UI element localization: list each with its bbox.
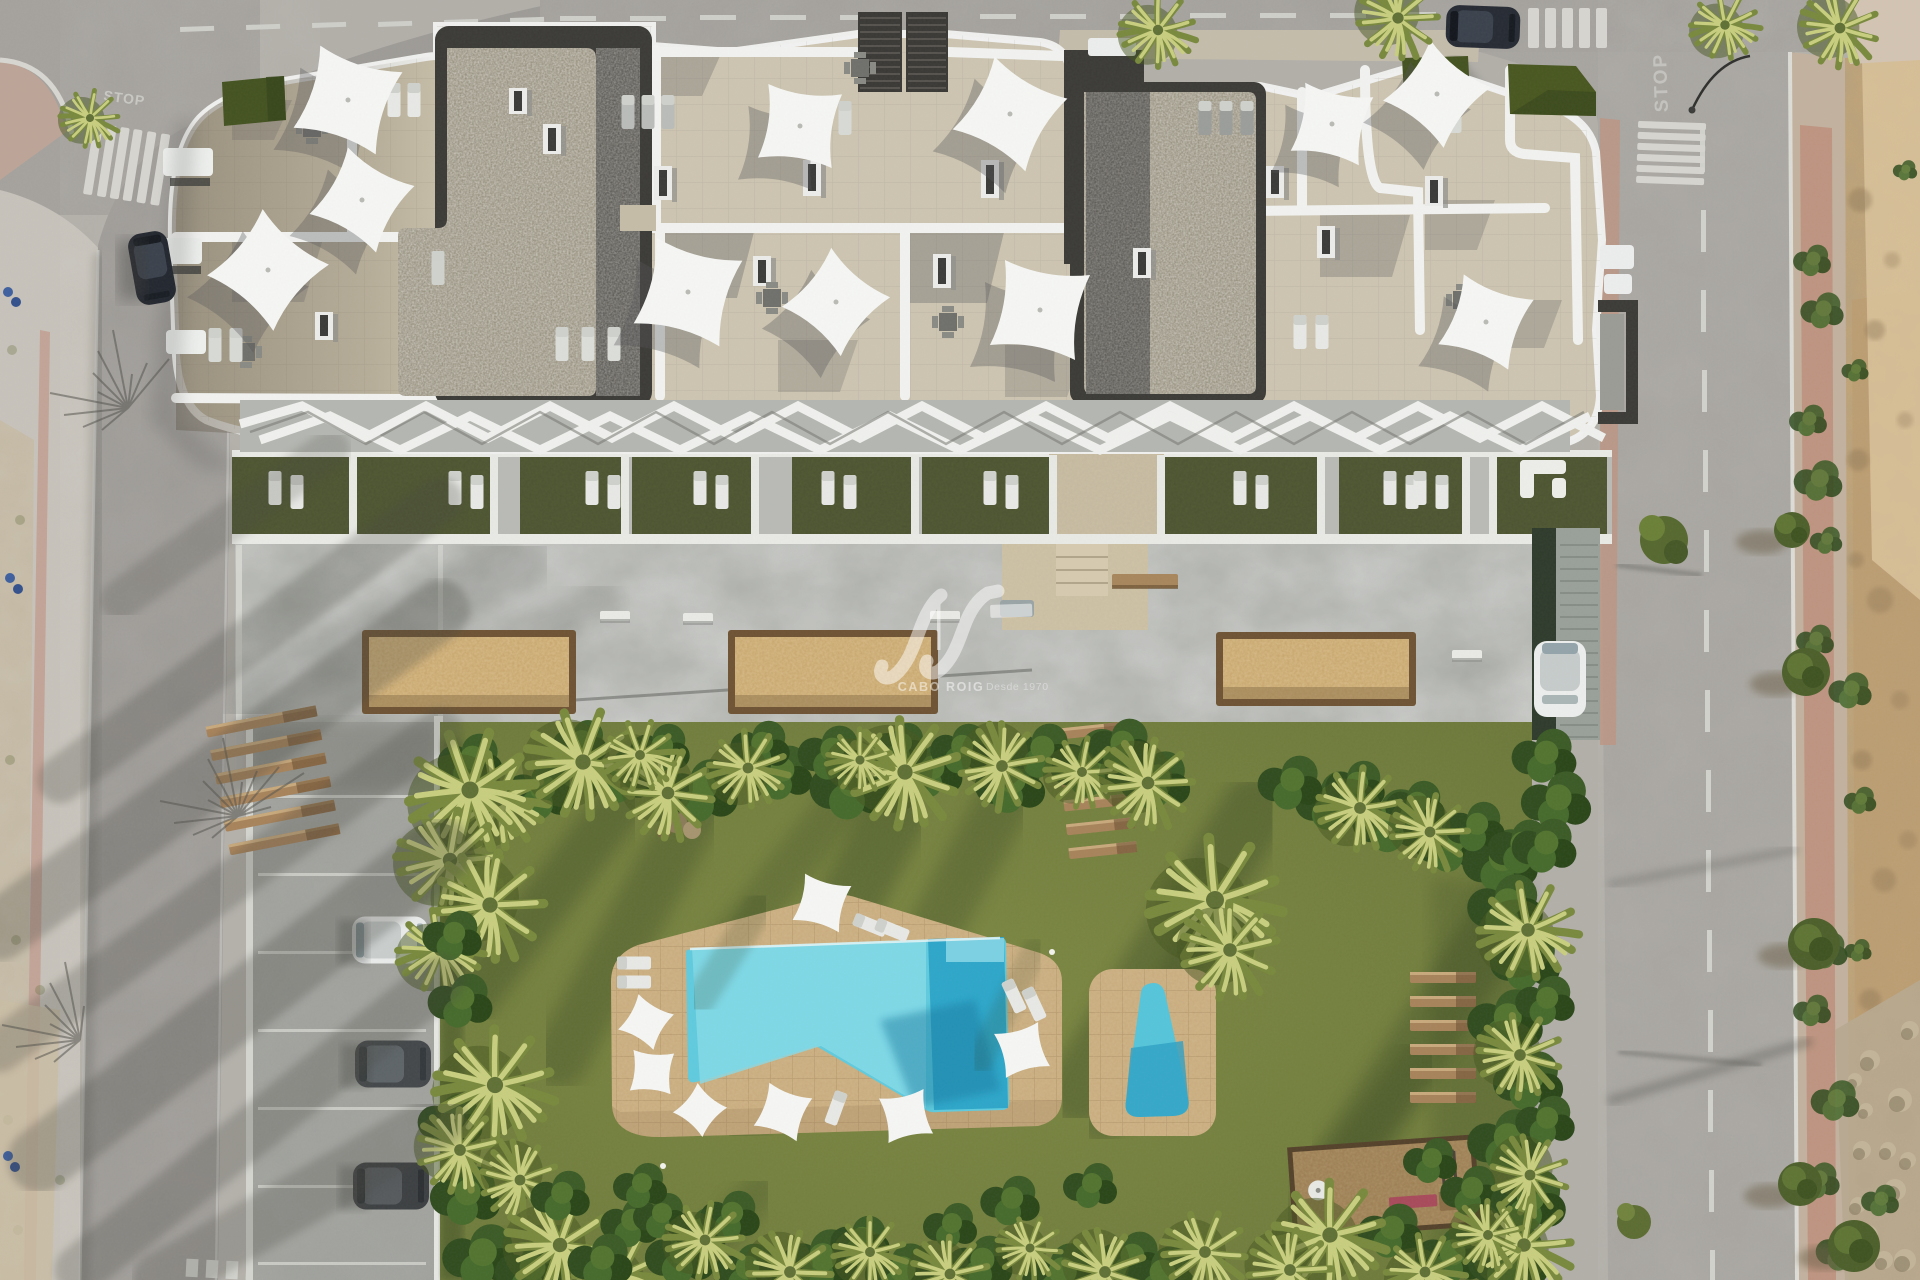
svg-text:CABO ROIG: CABO ROIG — [898, 680, 985, 694]
svg-text:Desde 1970: Desde 1970 — [986, 681, 1049, 693]
